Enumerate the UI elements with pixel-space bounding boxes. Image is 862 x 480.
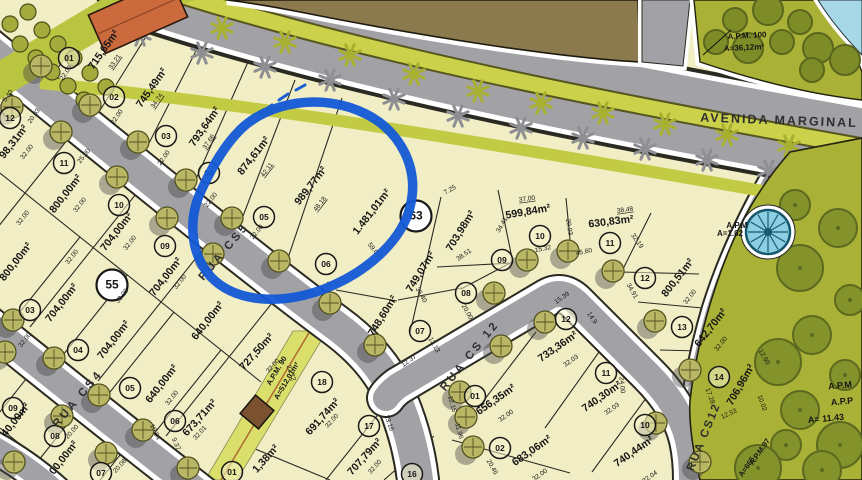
- lot-number-badge: 03: [20, 300, 41, 321]
- dimension-label: 24.00: [618, 376, 626, 393]
- lot-number-badge: 04: [68, 340, 89, 361]
- park-tree-icon: [835, 285, 862, 315]
- lot-number: 07: [96, 468, 106, 478]
- lot-number-badge: 08: [456, 283, 477, 304]
- lot-number-badge: 02: [490, 438, 511, 459]
- lot-number: 14: [714, 372, 724, 382]
- lot-number: 03: [161, 131, 171, 141]
- park-tree-icon: [788, 10, 812, 34]
- park-tree-icon: [803, 451, 841, 480]
- hedge-tree-icon: [2, 16, 18, 32]
- lot-number-badge: 12: [556, 309, 577, 330]
- lot-number-badge: 10: [635, 415, 656, 436]
- lot-number: 08: [461, 288, 471, 298]
- lot-number: 10: [535, 231, 545, 241]
- lot-number: 18: [317, 377, 327, 387]
- lot-number: 06: [321, 259, 331, 269]
- apm-annotation: A.P.P: [830, 395, 853, 407]
- lot-number: 10: [114, 200, 124, 210]
- lot-number: 01: [227, 467, 237, 477]
- lot-number: 09: [497, 255, 507, 265]
- lot-number: 10: [640, 420, 650, 430]
- lot-number-badge: 07: [91, 463, 112, 480]
- hedge-tree-icon: [20, 4, 36, 20]
- lot-number-badge: 03: [156, 126, 177, 147]
- lot-number: 12: [561, 314, 571, 324]
- lot-number: 12: [5, 113, 15, 123]
- lot-number-badge: 01: [222, 462, 243, 480]
- park-tree-icon: [819, 209, 857, 247]
- lot-number: 11: [602, 368, 611, 378]
- lot-number-badge: 11: [54, 153, 75, 174]
- block-number: 55: [105, 278, 119, 292]
- lot-number-badge: 12: [635, 268, 656, 289]
- apm-annotation: A=1.02: [717, 229, 744, 238]
- lot-number-badge: 14: [709, 367, 730, 388]
- park-tree-icon: [830, 45, 860, 75]
- lot-number: 11: [60, 158, 69, 168]
- lot-number: 16: [407, 469, 417, 479]
- lot-number: 05: [125, 383, 135, 393]
- subdivision-plan: 5563 01020304050607080910111213141211100…: [0, 0, 862, 480]
- lot-number: 12: [640, 273, 650, 283]
- lot-number: 03: [25, 305, 35, 315]
- lot-number-badge: 08: [45, 426, 66, 447]
- lot-number: 09: [160, 241, 170, 251]
- side-road: [642, 0, 690, 66]
- lot-number: 05: [259, 212, 269, 222]
- lot-number-badge: 13: [672, 317, 693, 338]
- lot-number: 07: [415, 326, 425, 336]
- lot-number-badge: 09: [155, 236, 176, 257]
- park-tree-icon: [753, 0, 783, 25]
- lot-number-badge: 11: [600, 233, 621, 254]
- park-tree-icon: [770, 30, 794, 54]
- lot-number-badge: 12: [0, 108, 21, 129]
- park-tree-icon: [755, 339, 801, 385]
- park-tree-icon: [800, 58, 824, 82]
- lot-number: 11: [606, 238, 615, 248]
- lot-number: 13: [677, 322, 687, 332]
- lot-number-badge: 16: [402, 464, 423, 480]
- lot-number-badge: 02: [104, 87, 125, 108]
- lot-number-badge: 05: [254, 207, 275, 228]
- lot-number-badge: 06: [316, 254, 337, 275]
- lot-number: 01: [470, 391, 480, 401]
- park-tree-icon: [793, 316, 831, 354]
- lot-number: 01: [64, 53, 74, 63]
- lot-number: 08: [50, 431, 60, 441]
- lot-number-badge: 09: [492, 250, 513, 271]
- lot-number: 02: [109, 92, 119, 102]
- lot-number-badge: 17: [359, 416, 380, 437]
- lot-number: 06: [170, 416, 180, 426]
- hedge-tree-icon: [34, 22, 50, 38]
- apm-annotation: A.P.M: [828, 379, 853, 391]
- lot-number-badge: 18: [312, 372, 333, 393]
- lot-number-badge: 10: [530, 226, 551, 247]
- hedge-tree-icon: [12, 36, 28, 52]
- lot-number: 17: [364, 421, 374, 431]
- fountain-icon: [741, 205, 795, 259]
- park-tree-icon: [723, 8, 747, 32]
- lot-number: 04: [73, 345, 83, 355]
- plan-canvas: 5563 01020304050607080910111213141211100…: [0, 0, 862, 480]
- lot-number: 02: [495, 443, 505, 453]
- lot-number-badge: 05: [120, 378, 141, 399]
